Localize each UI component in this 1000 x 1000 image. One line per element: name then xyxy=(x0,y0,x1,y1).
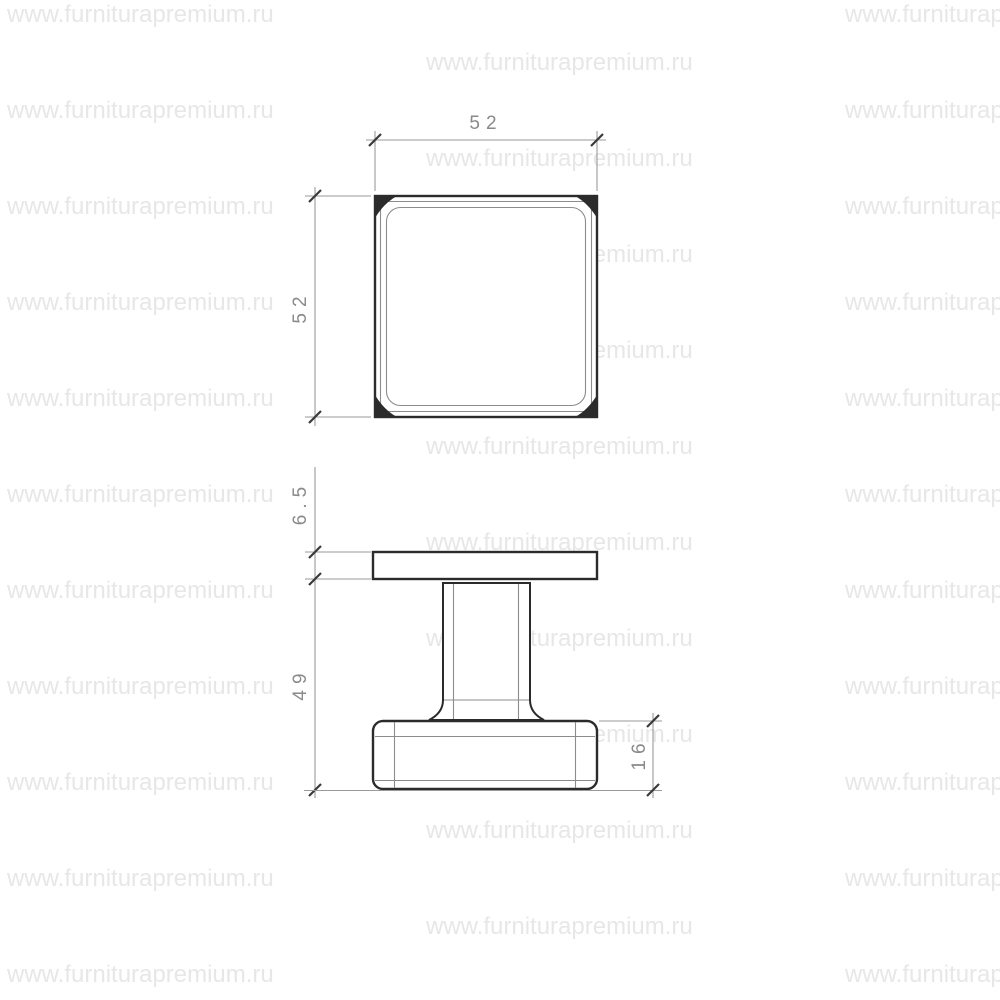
dim-label-body-height: 49 xyxy=(290,667,311,700)
dimension-plate-and-height: 6.5 49 xyxy=(290,467,371,798)
dim-label-top-height: 52 xyxy=(290,290,311,323)
drawing-svg: 52 52 6.5 49 xyxy=(0,0,1000,1000)
top-view-outer-square xyxy=(375,196,597,417)
technical-drawing-canvas: www.furniturapremium.ruwww.furnituraprem… xyxy=(0,0,1000,1000)
dim-label-base-height: 16 xyxy=(629,737,650,770)
side-view xyxy=(373,552,597,789)
side-view-plate xyxy=(373,552,597,579)
dim-label-top-width: 52 xyxy=(469,113,502,134)
dim-label-plate-thickness: 6.5 xyxy=(290,481,311,525)
side-view-base xyxy=(373,721,597,789)
top-view xyxy=(375,196,597,417)
dimension-top-width: 52 xyxy=(366,113,606,191)
dimension-top-height: 52 xyxy=(290,187,371,426)
